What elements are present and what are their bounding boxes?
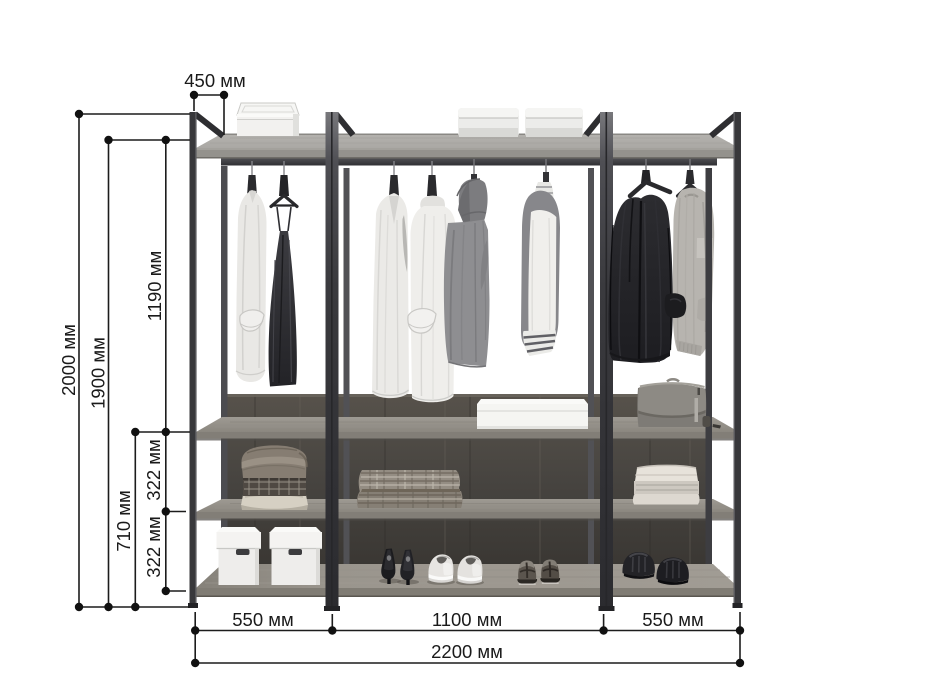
svg-text:322 мм: 322 мм	[143, 439, 164, 500]
svg-text:2000 мм: 2000 мм	[58, 324, 79, 396]
svg-text:710 мм: 710 мм	[113, 490, 134, 551]
svg-text:550 мм: 550 мм	[232, 609, 293, 630]
svg-text:1900 мм: 1900 мм	[88, 337, 109, 409]
svg-text:322 мм: 322 мм	[143, 516, 164, 577]
svg-text:450 мм: 450 мм	[184, 70, 245, 91]
svg-text:550 мм: 550 мм	[642, 609, 703, 630]
svg-text:1100 мм: 1100 мм	[432, 609, 502, 630]
svg-text:2200 мм: 2200 мм	[431, 641, 503, 662]
svg-text:1190 мм: 1190 мм	[144, 251, 165, 321]
